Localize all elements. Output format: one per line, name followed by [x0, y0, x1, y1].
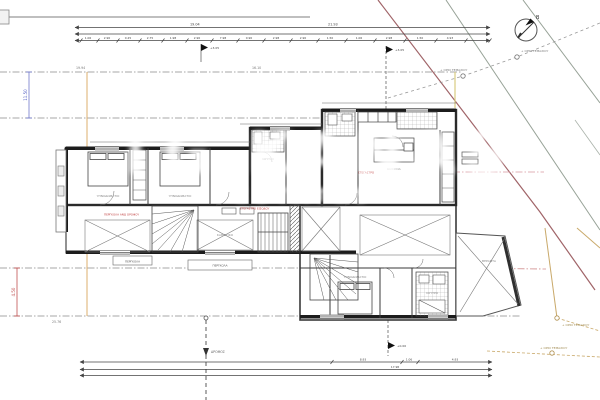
boundary-node-label: + ΟΡΙΟ ΤΕΜΑΧΙΟΥ: [562, 323, 590, 327]
dim-total: 21.93: [328, 23, 338, 27]
svg-text:ΠΕΡΓΚΟΛΑ ΑΝΩ ΟΡΟΦΟΥ: ΠΕΡΓΚΟΛΑ ΑΝΩ ΟΡΟΦΟΥ: [104, 213, 139, 217]
boundary-node-label: + ΟΡΙΟ ΤΕΜΑΧΙΟΥ: [440, 68, 468, 72]
level-marker: +3.05: [201, 44, 219, 62]
left-balcony: [56, 150, 66, 232]
dim-segment: 4.93: [447, 36, 454, 40]
svg-text:ΥΠΝΟΔΩΜΑΤΙΟ: ΥΠΝΟΔΩΜΑΤΙΟ: [344, 275, 367, 279]
dim-segment: 1.50: [327, 36, 334, 40]
pergola-label: ΠΕΡΓΚΟΛΑ: [213, 264, 228, 268]
dim-segment: 1.50: [417, 36, 424, 40]
side-dimension-red: 4.50: [11, 287, 16, 296]
level-marker: +0.00: [388, 320, 406, 356]
level-label: +3.05: [210, 46, 219, 50]
svg-text:ΚΟΥΖΙΝΑ: ΚΟΥΖΙΝΑ: [387, 167, 401, 171]
dim-segment: 8.93: [360, 357, 367, 361]
aux-dimension: 19.94: [76, 66, 85, 70]
pergola-box: ΠΕΡΓΚΟΛΑ ΠΕΡΓΚΟΛΑ: [113, 256, 252, 270]
dim-segment: 2.98: [273, 36, 280, 40]
dim-segment: 2.90: [104, 36, 111, 40]
bottom-dimension-lines: 8.93 1.06 4.93 17.98 +0.00: [80, 320, 492, 376]
dim-segment: 2.90: [194, 36, 201, 40]
level-label: +0.00: [397, 344, 406, 348]
exterior-unit: [462, 152, 478, 164]
boundary-node-label: + ΟΡΙΟ ΤΕΜΑΧΙΟΥ: [521, 49, 549, 53]
level-label: +3.05: [395, 48, 404, 52]
road-access-line: ΔΡΟΜΟΣ: [203, 316, 225, 400]
dim-segment: 1.06: [406, 357, 413, 361]
building-plan: ΠΕΡΓΚΟΛΑ ΠΕΡΓΚΟΛΑ ΠΕΡΓΚΟΛΑ ΑΝΩ ΟΡΟΦΟΥ ΣΤ…: [56, 103, 521, 320]
floor-plan-canvas: + ΟΡΙΟ ΤΕΜΑΧΙΟΥ + ΟΡΙΟ ΤΕΜΑΧΙΟΥ + ΟΡΙΟ Τ…: [0, 0, 600, 400]
dim-segment: 1.06: [356, 36, 363, 40]
boundary-node: [461, 74, 465, 78]
dim-segment: 1.98: [170, 36, 177, 40]
dim-segment: 2.90: [300, 36, 307, 40]
svg-text:ΥΠΝΟΔΩΜΑΤΙΟ: ΥΠΝΟΔΩΜΑΤΙΟ: [169, 194, 192, 198]
dim-total: 19.04: [190, 23, 200, 27]
dim-segment: 7.98: [220, 36, 227, 40]
svg-text:ΛΟΥΤΡΟ: ΛΟΥΤΡΟ: [262, 157, 275, 161]
dim-segment: 2.75: [147, 36, 154, 40]
level-marker: +3.05: [386, 46, 404, 110]
dim-segment: 2.98: [386, 36, 393, 40]
dim-segment: 1.06: [85, 36, 92, 40]
dim-segment: 0.90: [246, 36, 253, 40]
floor-plan-drawing: + ΟΡΙΟ ΤΕΜΑΧΙΟΥ + ΟΡΙΟ ΤΕΜΑΧΙΟΥ + ΟΡΙΟ Τ…: [0, 0, 600, 400]
boundary-node: [550, 351, 554, 355]
boundary-node-label: + ΟΡΙΟ ΤΕΜΑΧΙΟΥ: [540, 346, 568, 350]
svg-text:ΒΕΡΑΝΤΑ: ΒΕΡΑΝΤΑ: [482, 259, 497, 263]
north-label: Β: [536, 15, 540, 21]
dim-segment: 4.93: [452, 357, 459, 361]
svg-text:ΣΤΕΓΑΣΤΡΟ ΕΙΣΟΔΟΥ: ΣΤΕΓΑΣΤΡΟ ΕΙΣΟΔΟΥ: [240, 207, 270, 211]
dim-segment: 0.25: [125, 36, 132, 40]
dim-total: 17.98: [391, 365, 399, 369]
shaft-hatched: [290, 205, 300, 252]
svg-text:ΛΟΥΤΡΟ: ΛΟΥΤΡΟ: [426, 291, 439, 295]
svg-text:ΥΠΝΟΔΩΜΑΤΙΟ: ΥΠΝΟΔΩΜΑΤΙΟ: [97, 194, 120, 198]
svg-text:ΣΤΕΓΑΣΤΡΟ: ΣΤΕΓΑΣΤΡΟ: [358, 171, 375, 175]
svg-text:ΚΑΘΙΣΤΙΚΟ: ΚΑΘΙΣΤΙΚΟ: [217, 233, 234, 237]
side-dimension-blue: 11.50: [23, 89, 28, 101]
boundary-node: [555, 316, 559, 320]
road-label: ΔΡΟΜΟΣ: [211, 350, 225, 354]
aux-dimension: 16.10: [252, 66, 261, 70]
pergola-label: ΠΕΡΓΚΟΛΑ: [125, 259, 140, 263]
boundary-node: [515, 55, 519, 59]
north-arrow-icon: Β: [515, 15, 540, 41]
aux-dimension: 25.76: [52, 320, 61, 324]
